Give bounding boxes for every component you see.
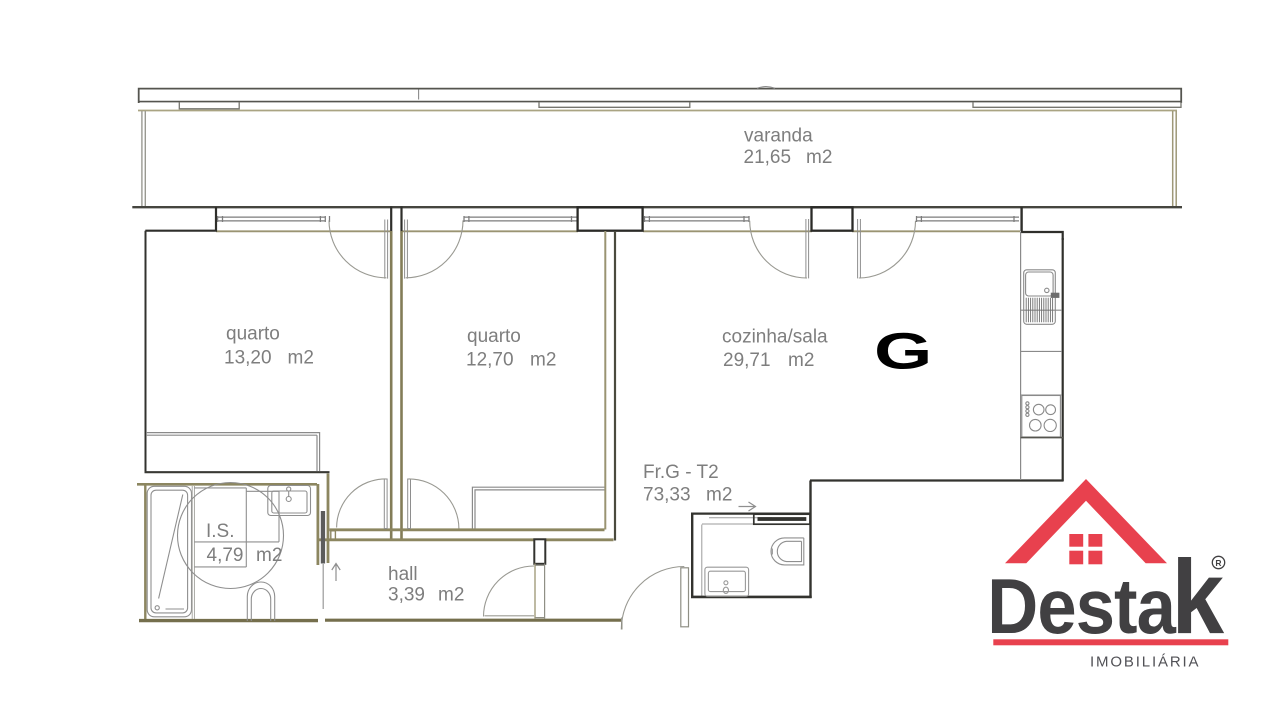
svg-text:m2: m2 bbox=[706, 485, 732, 506]
svg-text:Fr.G - T2: Fr.G - T2 bbox=[643, 462, 719, 483]
svg-text:29,71: 29,71 bbox=[723, 350, 771, 371]
svg-text:73,33: 73,33 bbox=[643, 485, 691, 506]
svg-text:Desta: Desta bbox=[987, 563, 1176, 650]
svg-text:13,20: 13,20 bbox=[224, 348, 272, 369]
svg-text:4,79: 4,79 bbox=[207, 545, 244, 566]
svg-text:quarto: quarto bbox=[226, 324, 280, 345]
svg-text:3,39: 3,39 bbox=[388, 585, 425, 606]
svg-text:21,65: 21,65 bbox=[744, 147, 792, 168]
svg-text:m2: m2 bbox=[530, 350, 556, 371]
svg-text:varanda: varanda bbox=[744, 126, 813, 147]
svg-text:G: G bbox=[874, 322, 932, 379]
svg-text:m2: m2 bbox=[256, 545, 282, 566]
svg-text:I.S.: I.S. bbox=[206, 521, 235, 542]
svg-text:m2: m2 bbox=[806, 147, 832, 168]
svg-text:m2: m2 bbox=[788, 350, 814, 371]
svg-text:hall: hall bbox=[388, 564, 418, 585]
svg-text:cozinha/sala: cozinha/sala bbox=[722, 327, 828, 348]
svg-text:12,70: 12,70 bbox=[466, 350, 514, 371]
svg-text:quarto: quarto bbox=[467, 326, 521, 347]
svg-text:m2: m2 bbox=[438, 585, 464, 606]
svg-text:IMOBILIÁRIA: IMOBILIÁRIA bbox=[1090, 654, 1200, 671]
svg-text:R: R bbox=[1215, 558, 1221, 568]
svg-text:m2: m2 bbox=[288, 348, 314, 369]
